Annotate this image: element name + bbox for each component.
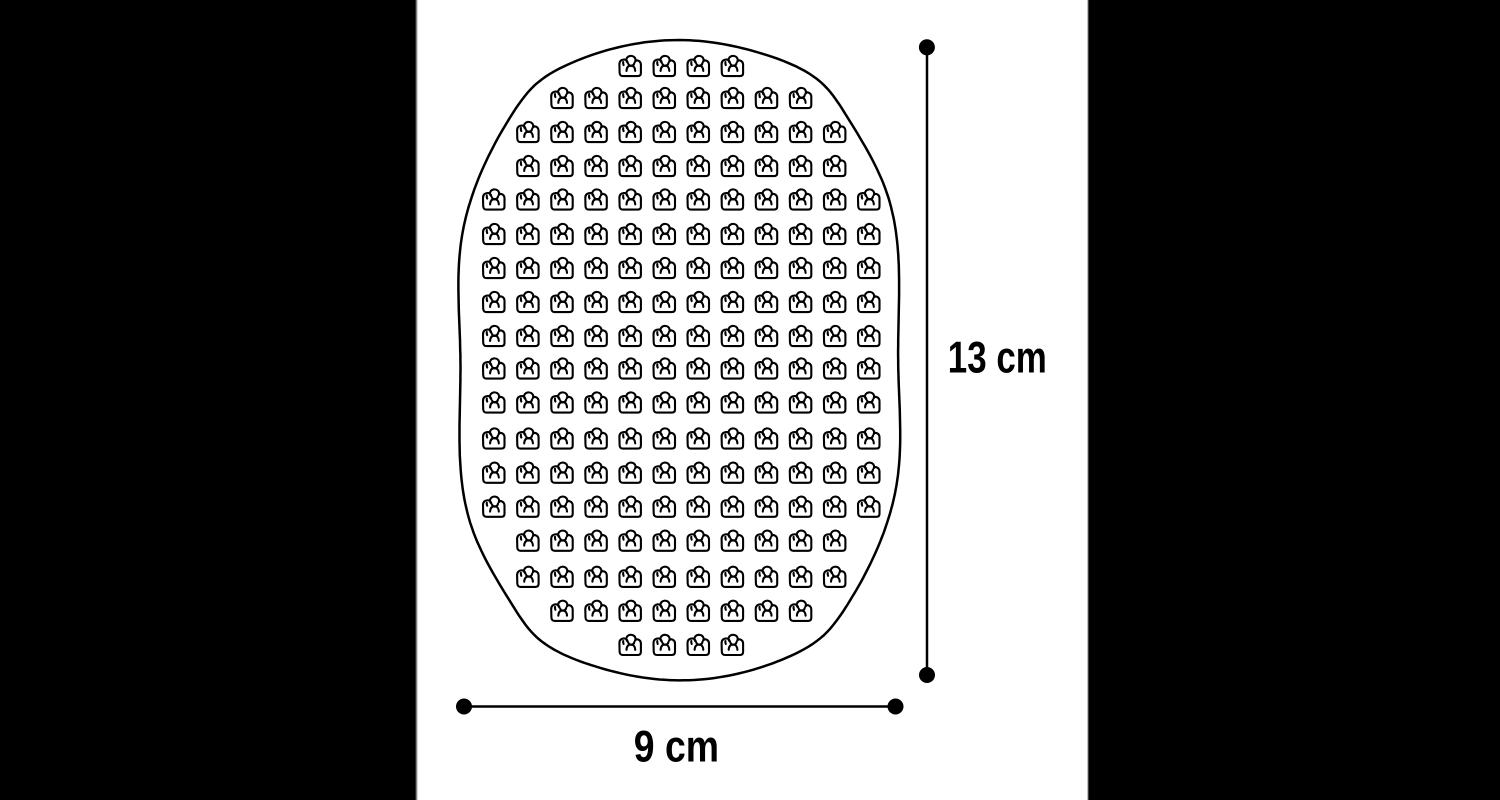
svg-text:9 cm: 9 cm	[634, 722, 719, 772]
svg-text:13 cm: 13 cm	[948, 333, 1047, 382]
